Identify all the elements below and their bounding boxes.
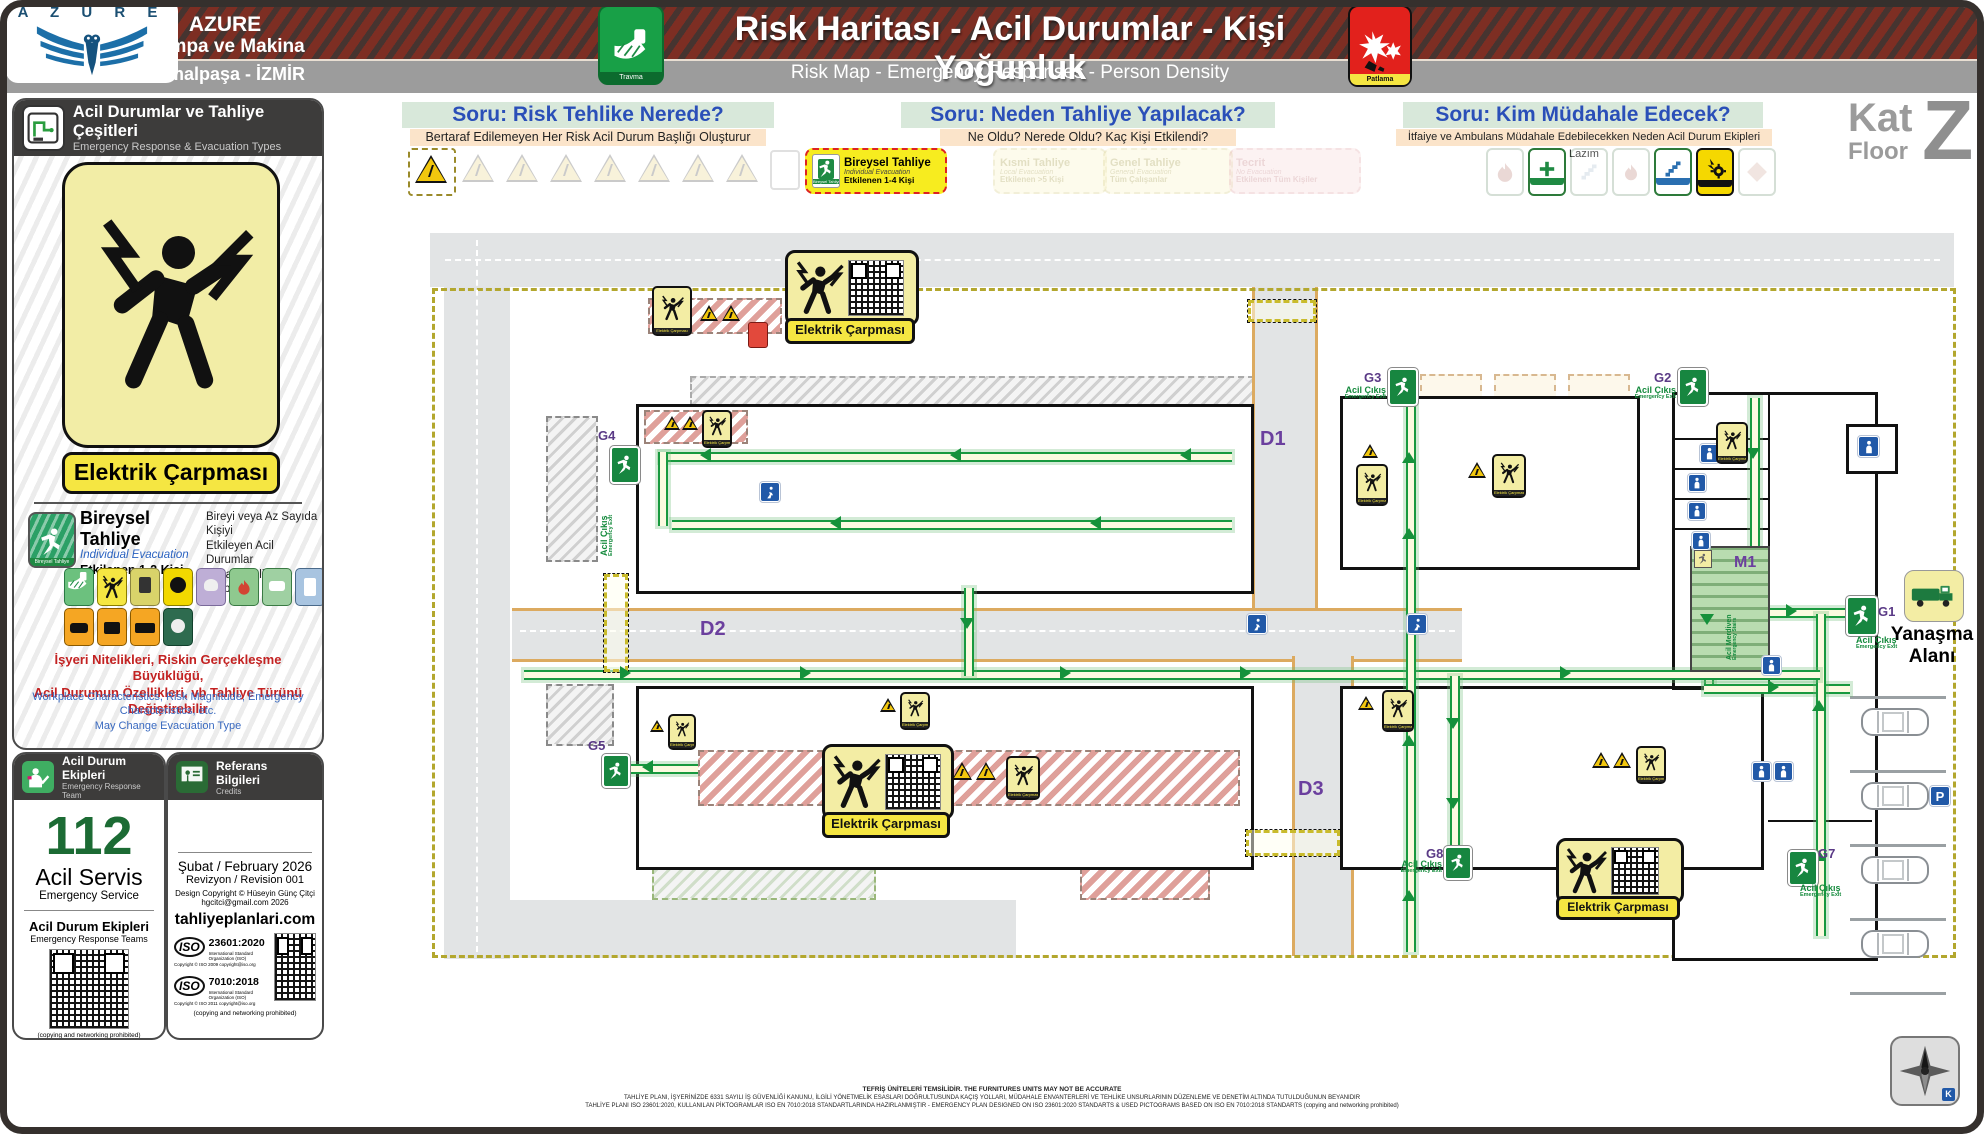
route-arrow-up [1402,890,1416,901]
evac-option-title: Tecrit [1236,158,1317,169]
big-elektrik-sign-top [785,250,919,326]
small-red-sign [748,322,768,348]
hazard-electric-active-box [408,148,456,196]
pedestrian-icon [1247,614,1267,634]
small-elektrik-sign: Elektrik Çarpması [1492,454,1526,498]
exit-g2-label: Acil ÇıkışEmergency Exit [1624,386,1676,401]
route-arrow-left [642,760,653,774]
route-arrow-down [1446,798,1460,809]
evac-option-title: Bireysel Tahliye [844,158,931,170]
floor-kat-label: Kat [1848,96,1912,141]
parked-car [1860,780,1930,812]
travma-icon: Travma [598,5,664,85]
big-elektrik-sign-bottom-label: Elektrik Çarpması [822,812,950,838]
door-d1-label: D1 [1260,428,1286,451]
exit-g7-label: Acil ÇıkışEmergency Exit [1800,884,1856,899]
exit-g7-sign [1788,850,1818,886]
route-arrow-right [1060,666,1071,680]
footer-line3: TAHLİYE PLANI ISO 23601:2020, KULLANILAN… [0,1103,1984,1109]
technical-team-icon [1696,148,1734,196]
patlama-icon: Patlama [1348,5,1412,87]
road-centerline [445,259,1940,261]
parking-stall-line [1850,696,1946,699]
big-elektrik-sign-right-label: Elektrik Çarpması [1556,896,1680,920]
small-elektrik-sign: Elektrik Çarpması [702,410,732,448]
exit-mini-icon: Bireysel Tahliye [812,154,840,188]
big-elektrik-sign-bottom [822,744,954,820]
wc-female-icon [1688,502,1706,520]
door-d2-label: D2 [700,618,726,641]
parked-car [1860,928,1930,960]
pedestrian-icon [1407,614,1427,634]
route-arrow-left [830,516,841,530]
evac-option-genel: Genel Tahliye General Evacuation Tüm Çal… [1103,148,1233,194]
stairs-runman-icon [1694,550,1712,568]
sign-qr-code [848,260,904,316]
route-arrow-right [620,666,631,680]
evac-option-count: Etkilenen >5 Kişi [1000,176,1070,184]
patlama-label: Patlama [1350,74,1410,85]
small-elektrik-sign: Elektrik Çarpması [1356,464,1388,506]
small-elektrik-sign: Elektrik Çarpması [652,286,692,336]
road-centerline [476,240,478,952]
parked-car [1860,706,1930,738]
door-d3-label: D3 [1298,778,1324,801]
exit-g4-label: Acil ÇıkışEmergency Exit [600,515,615,556]
exit-g2-sign [1678,368,1708,406]
stairs-m1-label: M1 [1734,554,1756,572]
canteen-icon [1752,762,1771,781]
evac-option-bireysel: Bireysel Tahliye Bireysel Tahliye Indivi… [805,148,947,194]
route-arrow-down [960,618,974,629]
road-centerline [520,630,1455,632]
fire-team-icon [1486,148,1524,196]
parked-car [1860,854,1930,886]
big-elektrik-sign-right [1556,838,1684,904]
exit-g3-label: Acil ÇıkışEmergency Exit [1344,386,1386,401]
chemical-team-icon [1738,148,1776,196]
exit-g1-sign [1846,596,1878,636]
first-aid-room-icon [1858,436,1879,457]
evac-option-title: Genel Tahliye [1110,158,1181,169]
route-arrow-right [1240,666,1251,680]
route-arrow-down [1700,614,1714,625]
small-elektrik-sign: Elektrik Çarpması [900,692,930,730]
docking-area-icon [1904,570,1964,622]
protection-team-icon [1612,148,1650,196]
gate-left [604,574,628,672]
evac-route [672,520,1232,530]
exit-g2-id: G2 [1654,370,1671,385]
evacuation-team-icon [1654,148,1692,196]
waste-bin-icon [770,150,800,190]
mini-exit-band: Bireysel Tahliye [813,179,839,184]
parking-stall-line [1850,992,1946,995]
electric-hazard-triangle-icon [415,155,447,183]
stairs-text: Acil MerdivenEmergency Stairs [1726,614,1739,660]
rescue-team-icon [1570,148,1608,196]
parking-stall-line [1850,844,1946,847]
route-arrow-left [950,448,961,462]
company-line2: Pompa ve Makina [130,36,320,58]
route-arrow-right [1786,604,1797,618]
evac-option-title: Kısmi Tahliye [1000,158,1070,169]
sign-qr-code [885,754,941,810]
exit-g1-id: G1 [1878,604,1895,619]
evac-option-count: Etkilenen 1-4 Kişi [844,176,931,185]
evac-route [658,452,668,526]
small-elektrik-sign: Elektrik Çarpması [1636,746,1666,784]
evac-route [1450,676,1460,848]
company-name: AZURE [150,13,300,37]
gate-d1 [1248,300,1316,322]
small-elektrik-sign: Elektrik Çarpması [1716,422,1748,464]
evac-option-kismi: Kısmi Tahliye Local Evacuation Etkilenen… [993,148,1107,194]
coffee-icon [1774,762,1793,781]
route-arrow-right [800,666,811,680]
exit-g5-id: G5 [588,738,605,753]
small-elektrik-sign: Elektrik Çarpması [1006,756,1040,800]
evac-option-tecrit: Tecrit No Evacuation Etkilenen Tüm Kişil… [1229,148,1361,194]
route-arrow-left [700,448,711,462]
gate-d3 [1246,830,1340,856]
route-arrow-right [1560,666,1571,680]
page-subtitle: Risk Map - Emergency Responses - Person … [680,62,1340,84]
route-arrow-up [1402,452,1416,463]
exit-g3-sign [1388,368,1418,406]
footer-line1: TEFRİŞ ÜNİTELERİ TEMSİLİDİR. THE FURNITU… [0,1086,1984,1093]
evac-route [660,452,1232,462]
route-arrow-down [1746,448,1760,459]
small-elektrik-sign: Elektrik Çarpması [668,714,696,750]
exit-g8-label: Acil ÇıkışEmergency Exit [1398,860,1442,875]
sign-qr-code [1611,847,1659,895]
electrocution-pictogram-icon [790,260,846,316]
floor-floor-label: Floor [1848,138,1908,166]
big-elektrik-sign-top-label: Elektrik Çarpması [785,318,915,344]
parking-stall-line [1850,770,1946,773]
first-aid-team-icon [1528,148,1566,196]
wc-male-icon [1688,474,1706,492]
route-arrow-left [1180,448,1191,462]
company-location: Kemalpaşa - İZMİR [130,64,320,85]
route-arrow-right [1768,680,1779,694]
electrocution-pictogram-icon [1561,847,1609,895]
exit-g1-label: Acil ÇıkışEmergency Exit [1856,636,1916,651]
route-arrow-up [1402,735,1416,746]
evac-route [964,588,974,676]
electrocution-pictogram-icon [827,754,883,810]
small-elektrik-sign: Elektrik Çarpması [1382,690,1414,732]
route-arrow-up [1402,528,1416,539]
exit-g7-id: G7 [1818,846,1835,861]
exit-g5-sign [602,754,630,788]
exit-g4-sign [610,446,640,484]
ambulance-truck-icon [1910,581,1958,611]
footer-line2: TAHLİYE PLANI, İŞYERİNİZDE 6331 SAYILI İ… [0,1095,1984,1101]
evac-option-count: Etkilenen Tüm Kişiler [1236,176,1317,184]
parking-sign: P [1930,786,1950,806]
shower-icon [1692,532,1710,550]
floor-letter: Z [1922,82,1973,179]
exit-g4-id: G4 [598,428,615,443]
route-arrow-down [1446,718,1460,729]
exit-g3-id: G3 [1364,370,1381,385]
elevator-icon [1762,656,1781,675]
route-arrow-up [1812,700,1826,711]
evac-option-count: Tüm Çalışanlar [1110,176,1181,184]
route-arrow-left [1090,516,1101,530]
pedestrian-icon [760,482,780,502]
exit-g8-sign [1444,846,1472,880]
evac-route-main [524,670,1820,680]
parking-stall-line [1850,918,1946,921]
travma-label: Travma [600,72,662,83]
evac-route [628,764,700,774]
